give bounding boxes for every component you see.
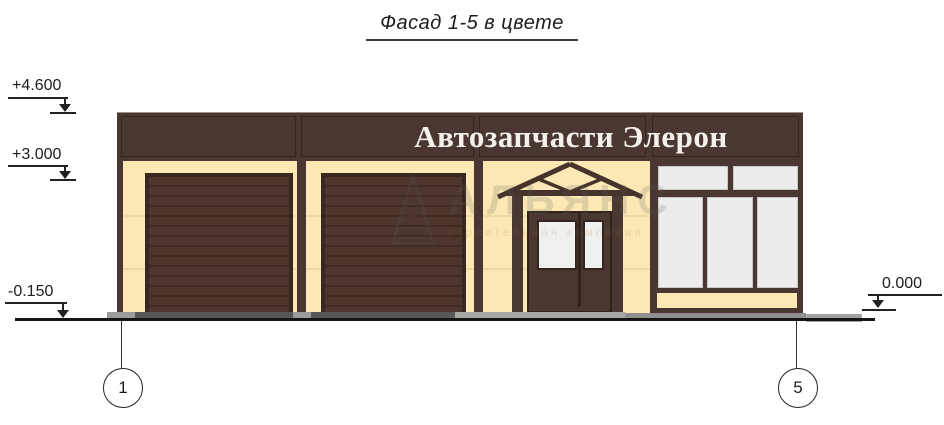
leader-line [868,294,942,296]
leader-line [8,165,68,167]
elevation-arrow-icon [872,300,884,308]
axis-extension-line [796,321,797,368]
drawing-title: Фасад 1-5 в цвете [366,12,578,41]
leader-line [8,97,68,99]
drawing-title-wrap: Фасад 1-5 в цвете [0,12,944,41]
transom-window [733,166,798,190]
corner-pilaster [117,160,123,313]
leader-line [5,302,67,304]
axis-extension-line [121,321,122,368]
elevation-value: 0.000 [882,275,922,293]
display-window [658,197,703,288]
door-stile [578,213,581,307]
storefront-spandrel [657,293,797,308]
elevation-value: -0.150 [8,283,53,301]
leader-base [50,179,76,181]
transom-window [658,166,728,190]
porch-post-left [512,196,523,313]
elevation-value: +4.600 [12,77,61,95]
shop-sign: Автозапчасти Элерон [371,119,771,155]
leader-base [50,112,76,114]
axis-number: 5 [793,378,802,398]
leader-base [862,309,896,311]
elevation-arrow-icon [57,310,69,318]
pilaster [297,160,306,313]
ground-line [15,318,875,321]
porch-post-right [612,196,623,313]
door-glass-main [537,220,577,270]
door-glass-side [583,220,604,270]
elevation-arrow-icon [59,171,71,179]
facade-drawing: Фасад 1-5 в цвете +4.600 +3.000 -0.150 0… [0,0,944,425]
pilaster [474,160,483,313]
display-window [707,197,753,288]
garage-door-1 [145,173,293,321]
display-window [757,197,798,288]
elevation-arrow-icon [59,104,71,112]
axis-bubble: 1 [103,368,143,408]
elevation-value: +3.000 [12,146,61,164]
fascia-panel [121,116,296,157]
axis-bubble: 5 [778,368,818,408]
axis-number: 1 [118,378,127,398]
garage-door-2 [321,173,466,321]
